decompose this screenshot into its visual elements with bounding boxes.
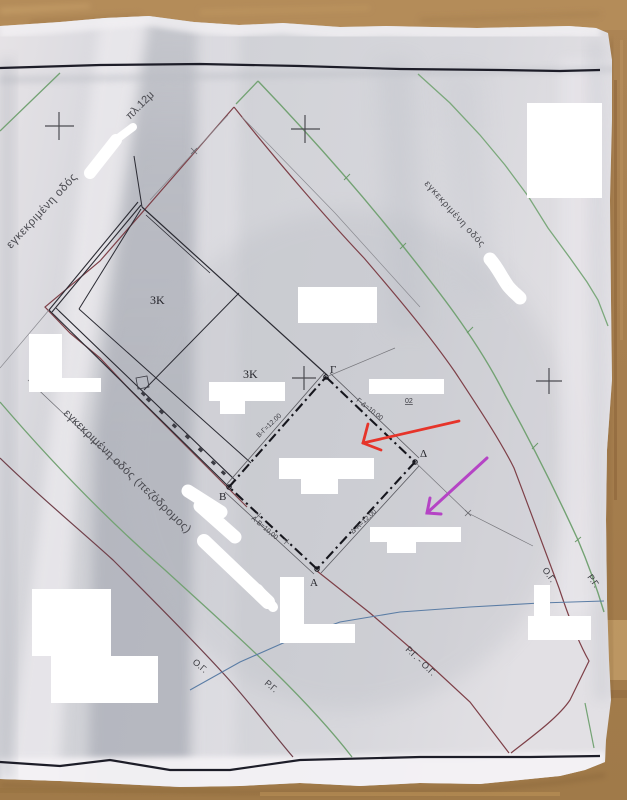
svg-text:Β: Β: [219, 491, 226, 503]
svg-text:Α: Α: [310, 577, 318, 589]
svg-text:3Κ: 3Κ: [243, 367, 258, 381]
svg-text:02: 02: [405, 398, 413, 405]
svg-text:3Κ: 3Κ: [150, 293, 165, 307]
svg-text:Δ: Δ: [420, 448, 427, 460]
svg-text:Γ: Γ: [330, 364, 336, 376]
